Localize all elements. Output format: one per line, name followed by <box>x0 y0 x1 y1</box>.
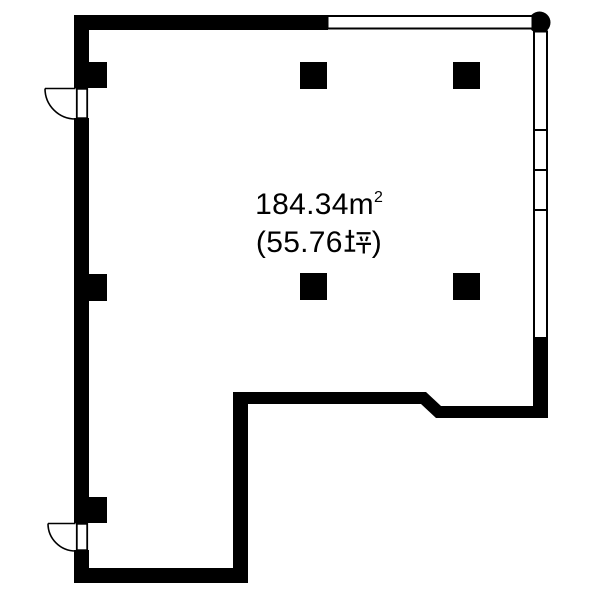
wall-top <box>74 15 328 30</box>
window-top <box>328 16 533 29</box>
pillar-wall-upper <box>89 62 107 88</box>
tsubo-kanji-glyph <box>344 227 371 254</box>
window-right <box>534 32 547 339</box>
pillar-wall-middle <box>89 274 107 301</box>
pillar-free-bottom-right <box>453 273 480 300</box>
door-lower-left <box>48 524 87 552</box>
tsubo-right-component <box>356 233 371 253</box>
door-upper-panel <box>77 89 87 118</box>
door-lower-panel <box>77 524 87 550</box>
pillar-free-top-right <box>453 62 480 89</box>
pillar-free-bottom-left <box>300 273 327 300</box>
pillar-free-top-left <box>300 62 327 89</box>
area-tsubo-suffix: ) <box>372 226 382 259</box>
area-sqm-exponent: 2 <box>374 189 383 206</box>
floorplan-page: 184.34m2 (55.76 ) <box>0 0 600 600</box>
door-lower-swing-arc <box>48 524 76 552</box>
window-right-frame <box>534 32 547 339</box>
walls <box>74 12 551 584</box>
area-label: 184.34m2 (55.76 ) <box>255 188 383 259</box>
door-upper-swing-arc <box>45 89 76 120</box>
area-sqm-value: 184.34 <box>255 188 349 221</box>
floorplan-drawing <box>0 0 600 600</box>
area-tsubo-prefix: (55.76 <box>256 226 343 259</box>
wall-left-middle <box>74 118 89 523</box>
pillar-wall-lower <box>89 497 107 523</box>
area-tsubo-line: (55.76 ) <box>255 226 383 259</box>
door-upper-left <box>45 89 87 120</box>
wall-bottom-step <box>233 392 548 418</box>
area-sqm-line: 184.34m2 <box>255 188 383 226</box>
tsubo-radical-earth <box>344 230 355 251</box>
area-sqm-unit: m <box>349 188 374 221</box>
window-top-frame <box>328 16 533 29</box>
wall-bottom <box>74 568 248 583</box>
wall-leg-right <box>233 392 248 583</box>
